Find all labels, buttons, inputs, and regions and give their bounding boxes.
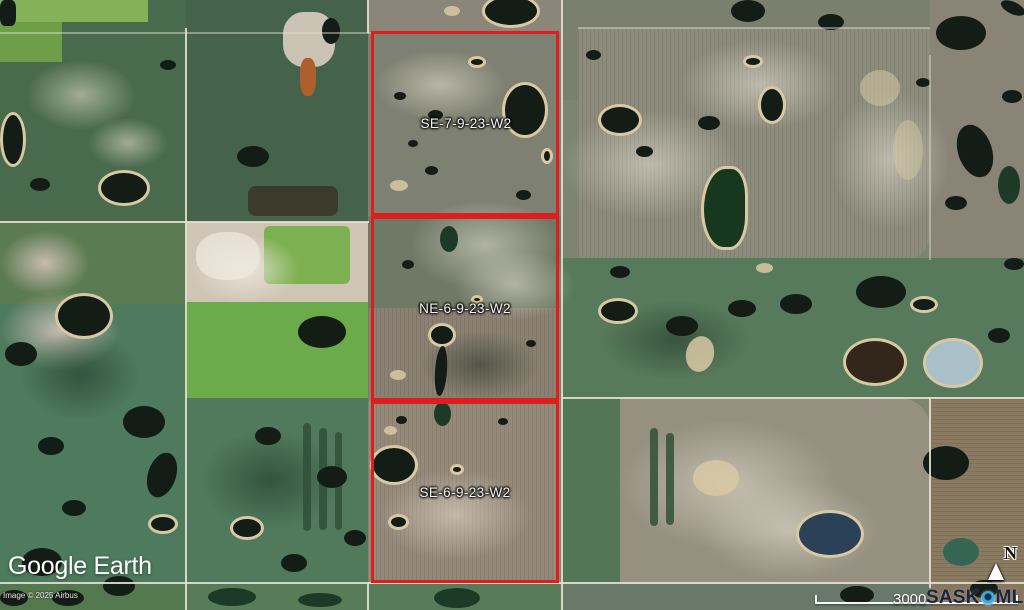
grid-road — [185, 28, 187, 610]
north-arrow-icon — [988, 546, 1004, 580]
pond — [945, 196, 967, 210]
dark-mottle — [20, 330, 140, 420]
sask-mls-logo-mls: MLS — [996, 587, 1024, 609]
field-boundary — [929, 55, 931, 260]
field-patch — [0, 22, 62, 62]
slough — [756, 263, 773, 273]
pond — [62, 500, 86, 516]
pond — [230, 516, 264, 540]
pond — [344, 530, 366, 546]
pond — [322, 18, 340, 44]
pond — [1004, 258, 1024, 270]
slough — [893, 120, 923, 180]
grid-road — [561, 0, 563, 610]
pond — [160, 60, 176, 70]
windbreak-row — [650, 428, 658, 526]
satellite-map-canvas[interactable]: SE-7-9-23-W2 NE-6-9-23-W2 SE-6-9-23-W2 G… — [0, 0, 1024, 610]
pond — [298, 593, 342, 607]
pond — [0, 0, 16, 26]
north-letter: N — [1004, 543, 1017, 563]
pond — [255, 427, 281, 445]
pond — [30, 178, 50, 191]
boot-pond — [701, 166, 748, 250]
pond — [636, 146, 653, 157]
pond — [598, 104, 642, 136]
blue-slough-pond — [796, 510, 864, 558]
pond — [317, 466, 347, 488]
sask-mls-logo-sask: SASK — [926, 587, 980, 609]
farm-building — [300, 58, 316, 96]
imagery-attribution: Image © 2025 Airbus — [3, 591, 78, 600]
location-pin-icon — [981, 591, 995, 605]
mud-pond — [843, 338, 907, 386]
pale-mottle — [830, 90, 950, 230]
pond — [123, 406, 165, 438]
grid-road — [561, 397, 1024, 399]
pond — [666, 316, 698, 336]
pond — [0, 112, 26, 167]
pond — [38, 437, 64, 455]
pale-mottle — [0, 230, 90, 296]
grid-road — [929, 398, 931, 588]
parcel-label: SE-6-9-23-W2 — [419, 485, 510, 500]
pond — [731, 0, 765, 22]
pond — [728, 300, 756, 317]
slough — [693, 460, 739, 496]
pond — [610, 266, 630, 278]
pond — [936, 16, 986, 50]
pond — [237, 146, 269, 167]
pond — [910, 296, 938, 313]
field-patch — [561, 398, 621, 584]
pond — [208, 588, 256, 606]
windbreak-row — [303, 423, 311, 531]
pond — [698, 116, 720, 130]
parcel-label: SE-7-9-23-W2 — [420, 116, 511, 131]
pond — [916, 78, 930, 87]
pond — [758, 86, 786, 124]
blue-pond — [923, 338, 983, 388]
pond — [943, 538, 979, 566]
pale-mottle — [88, 118, 168, 168]
field-boundary — [0, 32, 372, 34]
pond — [856, 276, 906, 308]
slough — [444, 6, 460, 16]
pond — [1002, 90, 1022, 103]
parcel-label: NE-6-9-23-W2 — [419, 301, 511, 316]
pond — [98, 170, 150, 206]
grid-road — [367, 583, 369, 610]
grid-road — [367, 0, 369, 33]
pond — [998, 166, 1020, 204]
pond — [434, 588, 480, 608]
pond — [780, 294, 812, 314]
grid-road — [0, 221, 369, 223]
pond — [988, 328, 1010, 343]
pond — [586, 50, 601, 60]
pond — [148, 514, 178, 534]
field-patch — [186, 302, 368, 398]
pond — [5, 342, 37, 366]
dark-soil-patch — [248, 186, 338, 216]
windbreak-row — [666, 433, 674, 525]
pond — [743, 55, 763, 68]
pond — [281, 554, 307, 572]
sask-mls-logo: SASK MLS ® — [926, 587, 1024, 609]
pond — [298, 316, 346, 348]
pond — [55, 293, 113, 339]
slough — [860, 70, 900, 106]
field-patch — [0, 0, 148, 22]
google-earth-watermark: Google Earth — [8, 552, 152, 581]
compass: N — [988, 544, 1014, 564]
scale-distance-label: 3000 — [893, 591, 926, 608]
pond — [598, 298, 638, 324]
pale-mottle — [190, 234, 300, 304]
field-boundary — [578, 27, 930, 29]
